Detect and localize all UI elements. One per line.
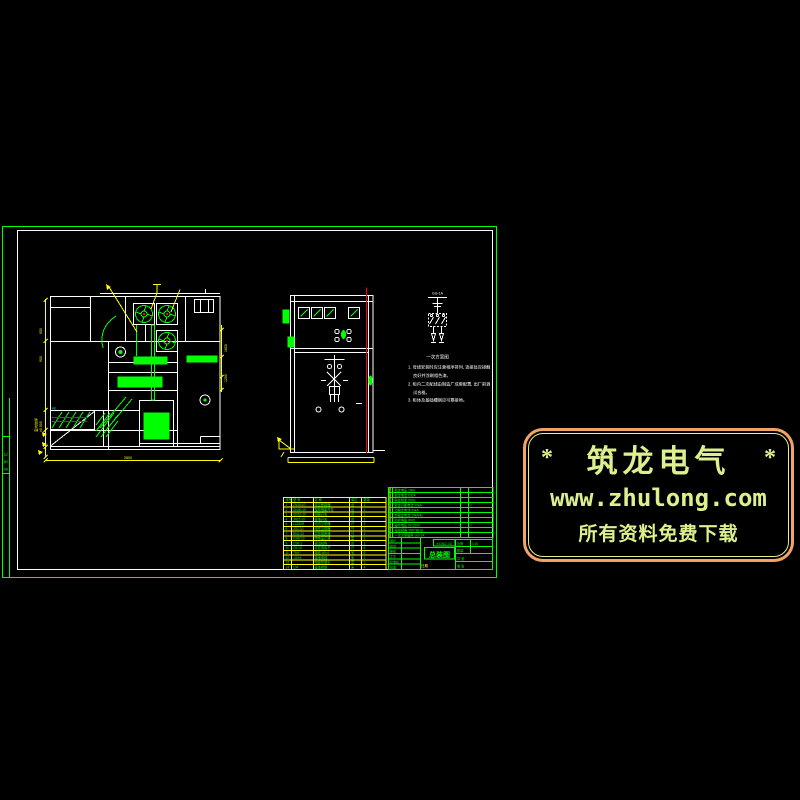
marker: [160, 453, 164, 457]
marker: [292, 390, 294, 393]
svg-text:额定频率 50Hz: 额定频率 50Hz: [395, 497, 416, 502]
qty-label: 数量: [457, 548, 464, 553]
svg-text:4: 4: [364, 565, 366, 569]
svg-text:1: 1: [364, 537, 366, 541]
marker: [292, 430, 294, 433]
marker: [113, 280, 117, 284]
cable-label: PE: [52, 407, 56, 411]
svg-text:台: 台: [351, 507, 354, 512]
svg-text:7: 7: [286, 532, 288, 536]
marker: [88, 420, 91, 422]
svg-text:台: 台: [351, 512, 354, 517]
svg-text:只: 只: [351, 532, 354, 536]
svg-text:支柱绝缘子: 支柱绝缘子: [315, 545, 332, 550]
svg-text:6: 6: [364, 546, 366, 550]
marker: [168, 453, 172, 457]
dim-right-top: 1600: [224, 344, 228, 352]
note-line: 3. 柜体及基础槽钢应可靠接地。: [408, 397, 467, 404]
svg-text:额定电流 630A: 额定电流 630A: [395, 492, 417, 497]
svg-text:只: 只: [351, 546, 354, 550]
note-line: 试合格。: [413, 389, 430, 396]
svg-text:5: 5: [286, 522, 288, 526]
marker: [147, 354, 150, 357]
svg-text:接地母线: 接地母线: [315, 555, 329, 560]
margin-strip-label: 会 签 栏: [3, 451, 8, 471]
svg-text:只: 只: [351, 527, 354, 531]
svg-text:电流互感器: 电流互感器: [315, 521, 332, 526]
marker: [152, 410, 155, 413]
svg-text:CS6-1: CS6-1: [293, 541, 302, 545]
svg-text:防护等级 IP4X: 防护等级 IP4X: [395, 517, 416, 522]
marker: [357, 284, 362, 288]
marker: [145, 453, 149, 457]
svg-text:TMY: TMY: [293, 551, 301, 555]
dim-left-top: 650: [39, 328, 43, 334]
svg-text:√: √: [470, 503, 472, 507]
svg-text:名 称: 名 称: [315, 497, 323, 502]
generated-content: 1. 母线安装时应注意相序排列, 连接处应接触良好并涂刷相色漆。2. 柜内二次配…: [45, 280, 493, 570]
dim-left-mid: 900: [39, 356, 43, 362]
marker: [91, 418, 94, 420]
marker: [114, 377, 117, 380]
marker: [370, 315, 372, 318]
svg-text:电缆终端头: 电缆终端头: [315, 560, 332, 565]
svg-text:LZZBJ9: LZZBJ9: [293, 522, 304, 526]
svg-text:批准: 批准: [390, 564, 396, 569]
svg-text:一次方案编号 GG-1A: 一次方案编号 GG-1A: [395, 532, 426, 537]
svg-text:RN2-10: RN2-10: [293, 532, 304, 536]
asterisk-left-icon: *: [541, 445, 553, 472]
svg-text:13: 13: [286, 561, 290, 565]
left-side-view: [38, 284, 224, 463]
schematic-caption: 一次方案图: [426, 354, 449, 361]
sheet-number: 第 张: [457, 564, 465, 569]
svg-text:1: 1: [364, 503, 366, 507]
svg-text:ZN28-10: ZN28-10: [293, 503, 306, 507]
marker: [370, 345, 372, 348]
date-label: 日期: [421, 563, 429, 568]
svg-text:8: 8: [286, 537, 288, 541]
svg-text:额定电压 10kV: 额定电压 10kV: [395, 487, 417, 492]
svg-text:基础槽钢: 基础槽钢: [315, 564, 328, 569]
svg-text:2: 2: [364, 556, 366, 560]
marker: [119, 343, 122, 346]
dimension-labels: 650 900 ±0.000 室内地坪 2800 1600 1200 PE: [34, 328, 229, 460]
svg-text:操动机构: 操动机构: [315, 540, 328, 545]
svg-text:√: √: [470, 523, 472, 527]
marker: [153, 453, 157, 457]
dim-bottom: 2800: [124, 456, 132, 460]
svg-text:工艺: 工艺: [390, 554, 396, 559]
svg-text:-40×4: -40×4: [293, 556, 301, 560]
drawing-number: XGN2-10: [436, 542, 452, 546]
svg-text:额定开断电流 25kA: 额定开断电流 25kA: [395, 502, 423, 507]
marker: [337, 297, 351, 300]
marker: [328, 458, 331, 462]
svg-text:单位: 单位: [351, 497, 358, 502]
svg-text:操作电压 DC220V: 操作电压 DC220V: [395, 522, 422, 527]
badge-title-row: * 筑龙电气 *: [529, 434, 788, 481]
svg-text:GN19-10: GN19-10: [293, 513, 306, 517]
schematic: GG-1A 一次方案图: [426, 292, 449, 361]
svg-text:14: 14: [286, 565, 290, 569]
dim-left-block: ±0.000: [39, 421, 43, 432]
svg-text:母线 40×4: 母线 40×4: [315, 550, 330, 555]
svg-text:台: 台: [351, 540, 354, 545]
schematic-label: GG-1A: [432, 292, 444, 296]
svg-text:高压熔断器: 高压熔断器: [315, 531, 332, 536]
note-line: 良好并涂刷相色漆。: [413, 372, 451, 379]
svg-text:1: 1: [364, 517, 366, 521]
badge-title: 筑龙电气: [587, 436, 731, 481]
marker: [483, 563, 488, 565]
svg-text:JN15-10: JN15-10: [293, 517, 305, 521]
marker: [138, 453, 142, 457]
svg-text:9: 9: [286, 541, 288, 545]
marker: [307, 297, 320, 300]
svg-text:GN30-10: GN30-10: [293, 508, 306, 512]
zhulong-watermark-badge: * 筑龙电气 * www.zhulong.com 所有资料免费下载: [523, 428, 794, 562]
marker: [322, 297, 335, 300]
svg-text:2: 2: [364, 522, 366, 526]
svg-text:台: 台: [351, 516, 354, 521]
marker: [118, 280, 122, 284]
sheet-total: 共 张: [457, 556, 465, 561]
marker: [292, 310, 294, 313]
svg-text:校对: 校对: [390, 543, 396, 548]
marker: [178, 285, 183, 290]
svg-text:动稳定电流 63kA: 动稳定电流 63kA: [395, 507, 420, 512]
marker: [370, 425, 372, 428]
badge-slogan: 所有资料免费下载: [578, 519, 738, 546]
asterisk-right-icon: *: [764, 445, 776, 472]
marker: [472, 563, 477, 565]
svg-text:ZS-10: ZS-10: [293, 546, 302, 550]
svg-text:序号: 序号: [286, 497, 292, 502]
svg-text:1: 1: [364, 541, 366, 545]
svg-text:10#: 10#: [293, 565, 299, 569]
svg-text:1: 1: [364, 561, 366, 565]
svg-text:标准化: 标准化: [390, 559, 399, 564]
badge-url: www.zhulong.com: [550, 484, 767, 512]
marker: [187, 408, 197, 414]
svg-text:4: 4: [286, 517, 288, 521]
svg-text:电压互感器: 电压互感器: [315, 526, 332, 531]
svg-text:6: 6: [286, 527, 288, 531]
marker: [110, 357, 113, 360]
marker: [59, 407, 64, 410]
marker: [481, 555, 487, 557]
cad-drawing: 会 签 栏: [0, 0, 800, 800]
svg-text:2: 2: [364, 527, 366, 531]
svg-text:1: 1: [364, 508, 366, 512]
svg-text:GSN-10: GSN-10: [293, 537, 305, 541]
svg-text:母线规格 TMY-80×8: 母线规格 TMY-80×8: [395, 527, 424, 532]
svg-text:数量: 数量: [364, 497, 371, 502]
marker: [133, 393, 136, 396]
marker: [338, 458, 341, 462]
drawing-title: 总装图: [429, 550, 450, 559]
svg-text:接地开关: 接地开关: [315, 516, 329, 521]
cad-viewport: 会 签 栏: [0, 0, 800, 800]
svg-text:带电显示器: 带电显示器: [315, 536, 332, 541]
svg-text:只: 只: [351, 522, 354, 526]
svg-text:11: 11: [286, 551, 290, 555]
svg-text:3: 3: [286, 513, 288, 517]
svg-text:2: 2: [286, 508, 288, 512]
svg-text:1: 1: [364, 513, 366, 517]
dim-right-mid: 1200: [224, 374, 228, 382]
scale-value: 1:10: [472, 542, 478, 546]
marker: [331, 458, 334, 462]
svg-text:台: 台: [351, 502, 354, 507]
note-line: 1. 母线安装时应注意相序排列, 连接处应接触: [408, 364, 491, 371]
svg-text:旋转隔离开关: 旋转隔离开关: [315, 507, 335, 512]
scale-label: 比例: [457, 541, 463, 546]
svg-text:JDZ-10: JDZ-10: [293, 527, 304, 531]
dim-left-block2: 室内地坪: [34, 418, 39, 432]
svg-text:1: 1: [286, 503, 288, 507]
svg-text:3: 3: [364, 532, 366, 536]
front-view: [277, 288, 385, 463]
svg-text:隔离开关: 隔离开关: [315, 512, 329, 517]
svg-text:12: 12: [286, 556, 290, 560]
note-line: 2. 柜内二次配线由制造厂成套配置, 出厂前调: [408, 381, 490, 388]
svg-text:6: 6: [364, 551, 366, 555]
svg-text:10: 10: [286, 546, 290, 550]
marker: [335, 458, 338, 462]
svg-text:真空断路器: 真空断路器: [315, 502, 332, 507]
svg-text:审核: 审核: [390, 548, 396, 553]
svg-text:型 号: 型 号: [293, 497, 300, 502]
svg-text:热稳定电流 25kA/4s: 热稳定电流 25kA/4s: [395, 512, 424, 517]
svg-text:设计: 设计: [390, 538, 396, 543]
badge-inner-border: * 筑龙电气 * www.zhulong.com 所有资料免费下载: [528, 433, 789, 557]
marker: [472, 548, 478, 550]
